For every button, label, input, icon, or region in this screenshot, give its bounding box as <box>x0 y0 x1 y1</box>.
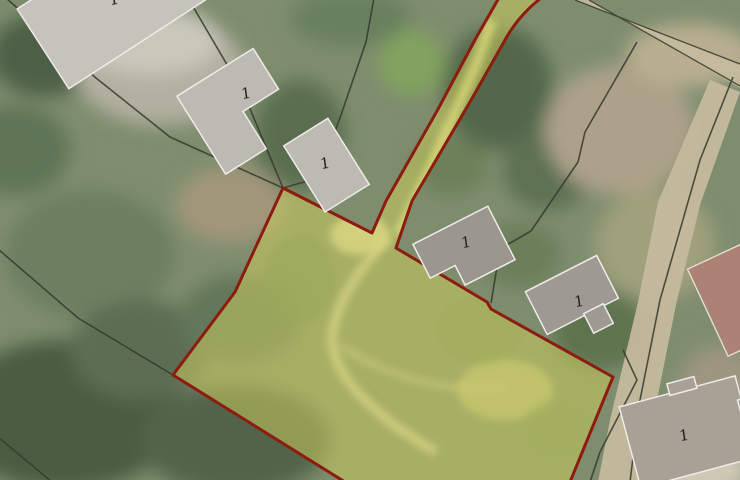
map-viewport[interactable]: 1 1 1 1 1 1 <box>0 0 740 480</box>
aerial-map: 1 1 1 1 1 1 <box>0 0 740 480</box>
building-label: 1 <box>108 0 120 9</box>
